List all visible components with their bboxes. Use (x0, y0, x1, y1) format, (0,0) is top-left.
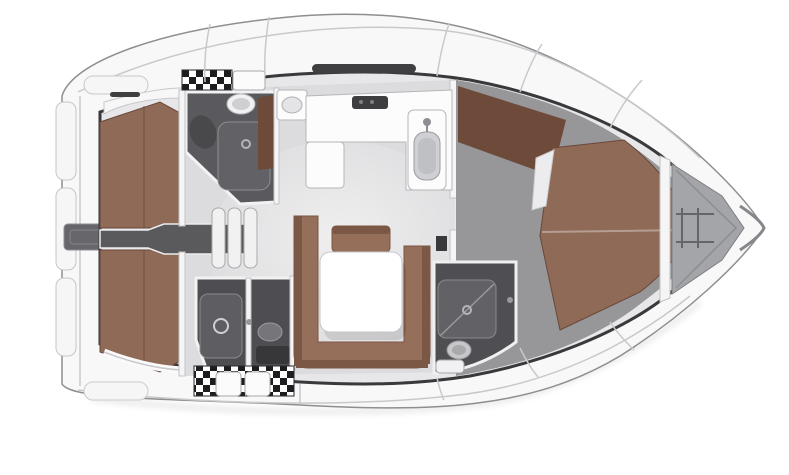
floorplan-canvas: Sailing yacht interior layout, top view … (0, 0, 789, 475)
companionway-step (228, 208, 241, 268)
stove-burner (370, 100, 374, 104)
mast-post: Mast post (436, 236, 447, 251)
settee-backrest (294, 216, 302, 366)
aft-cabin-starboard: Aft double cabin (starboard) (100, 250, 182, 372)
boat-floorplan: Sailing yacht interior layout, top view … (0, 0, 789, 475)
stove-icon (352, 96, 388, 109)
salon-table (320, 252, 402, 332)
settee-backrest (296, 360, 428, 368)
berth-port (100, 102, 182, 228)
companionway-step (244, 208, 257, 268)
deck-step-box (245, 372, 270, 396)
settee-backrest (422, 246, 430, 364)
head-aft-starboard: Aft head with shower (starboard) (196, 278, 292, 368)
wall-aft-port (179, 90, 185, 226)
cut-section-checker (194, 366, 294, 396)
toilet-bowl (452, 345, 466, 355)
sink-basin (436, 360, 464, 373)
wardrobe (258, 94, 276, 170)
bow-bulkhead (660, 156, 670, 302)
cut-section-checker (182, 70, 232, 90)
transom-panel (56, 102, 76, 180)
companionway-step (212, 208, 225, 268)
handrail-slot (312, 64, 416, 73)
stern-deck-panel (84, 382, 148, 400)
wall-aft-starboard (179, 252, 185, 376)
shower-tray (200, 294, 242, 358)
hand-basin (282, 97, 302, 113)
galley-fridge (306, 142, 344, 188)
deck-step-box (216, 372, 241, 396)
sink-basin-inner (418, 138, 436, 174)
deck-box (233, 71, 265, 90)
stern-deck-panel (84, 76, 148, 94)
aft-cabin-port: Aft double cabin (port) (100, 88, 182, 228)
door-handle-icon (246, 319, 252, 325)
settee-bench-top-back (332, 226, 390, 234)
stove-burner (359, 100, 363, 104)
toilet-icon (258, 323, 282, 341)
hatch-slot (110, 92, 140, 97)
toilet-cistern (256, 346, 290, 364)
transom-panel (56, 278, 76, 356)
toilet-bowl (232, 98, 250, 110)
door-handle-icon (507, 297, 513, 303)
